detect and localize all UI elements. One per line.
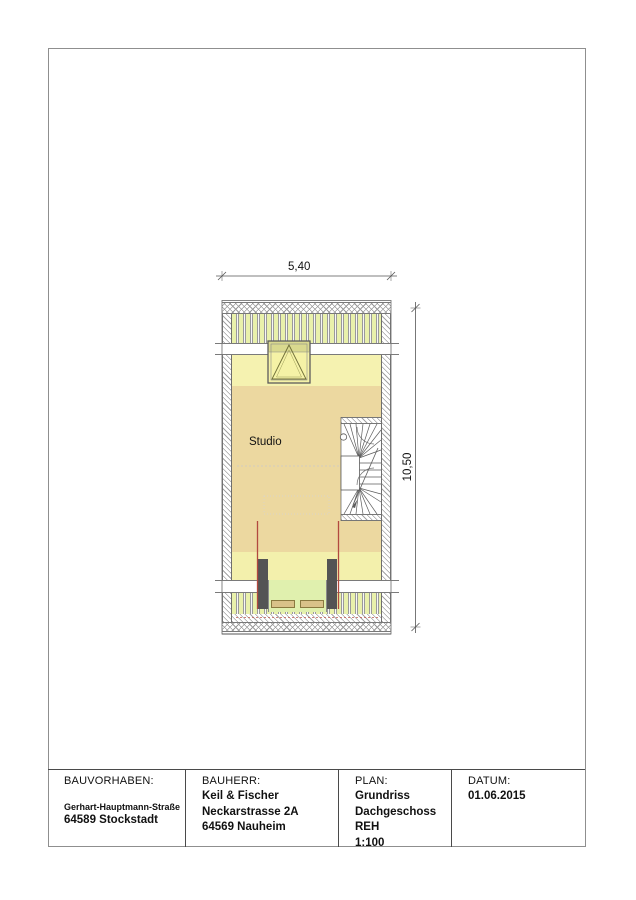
staircase-area <box>341 424 381 514</box>
plan-scale: 1:100 <box>355 836 451 852</box>
dimension-width-label: 5,40 <box>288 261 310 273</box>
client-city: 64569 Nauheim <box>202 820 338 836</box>
dimension-height-label: 10,50 <box>402 447 414 487</box>
plan-storey: Dachgeschoss <box>355 805 451 821</box>
client-name: Keil & Fischer <box>202 789 338 805</box>
wall-band-bottom <box>222 622 391 632</box>
stair-wall-bottom <box>341 514 381 521</box>
plan-type: Grundriss <box>355 789 451 805</box>
wall-right <box>381 314 391 622</box>
room-label-studio: Studio <box>249 436 282 448</box>
title-block-cell-plan: PLAN: Grundriss Dachgeschoss REH 1:100 <box>338 770 451 847</box>
pillar-left <box>258 559 268 609</box>
project-city: 64589 Stockstadt <box>64 813 185 829</box>
project-street: Gerhart-Hauptmann-Straße <box>64 801 185 813</box>
plan-label: PLAN: <box>355 775 451 787</box>
stair-wall-top <box>341 417 381 424</box>
pillar-right <box>327 559 337 609</box>
client-street: Neckarstrasse 2A <box>202 805 338 821</box>
date-value: 01.06.2015 <box>468 789 585 805</box>
plan-building: REH <box>355 820 451 836</box>
title-block-cell-project: BAUVORHABEN: Gerhart-Hauptmann-Straße 64… <box>48 770 185 847</box>
wall-band-top <box>222 302 391 314</box>
skylight-frame-top <box>268 341 310 352</box>
title-block-cell-client: BAUHERR: Keil & Fischer Neckarstrasse 2A… <box>185 770 338 847</box>
client-label: BAUHERR: <box>202 775 338 787</box>
drawing-sheet: 5,40 10,50 Studio BAUVORHABEN: Gerhart-H… <box>0 0 636 900</box>
floor-lower-strip <box>232 552 381 580</box>
sill-left <box>271 600 295 608</box>
roof-band-top <box>232 314 381 343</box>
title-block: BAUVORHABEN: Gerhart-Hauptmann-Straße 64… <box>48 769 585 846</box>
eaves-band-bottom <box>232 614 381 622</box>
title-block-cell-date: DATUM: 01.06.2015 <box>451 770 585 847</box>
date-label: DATUM: <box>468 775 585 787</box>
project-label: BAUVORHABEN: <box>64 775 185 787</box>
wall-left <box>222 314 232 622</box>
sill-right <box>300 600 324 608</box>
